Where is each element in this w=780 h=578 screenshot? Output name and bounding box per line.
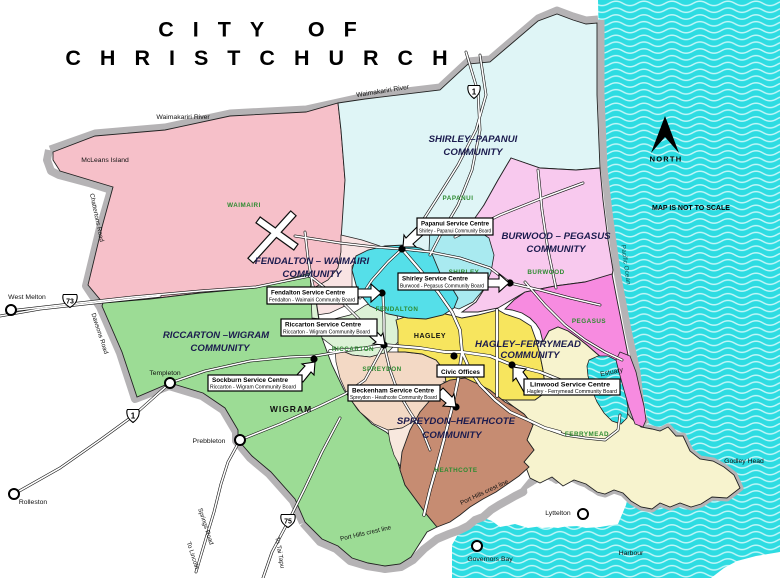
svg-text:Waimakariri River: Waimakariri River <box>156 114 210 121</box>
svg-text:Hagley - Ferrymead Community B: Hagley - Ferrymead Community Board <box>527 389 617 395</box>
svg-text:FERRYMEAD: FERRYMEAD <box>565 431 609 438</box>
svg-text:BURWOOD: BURWOOD <box>527 269 564 276</box>
svg-text:COMMUNITY: COMMUNITY <box>422 430 483 441</box>
svg-text:Riccarton - Wigram Community B: Riccarton - Wigram Community Board <box>210 385 296 391</box>
svg-text:NORTH: NORTH <box>650 155 683 164</box>
svg-text:HEATHCOTE: HEATHCOTE <box>434 467 477 474</box>
svg-text:Prebbleton: Prebbleton <box>193 438 226 445</box>
svg-text:Harbour: Harbour <box>619 550 644 557</box>
svg-text:RICCARTON: RICCARTON <box>332 346 374 353</box>
svg-text:SPREYDON–HEATHCOTE: SPREYDON–HEATHCOTE <box>397 416 516 427</box>
svg-text:Shirley - Papanui Community Bo: Shirley - Papanui Community Board <box>419 229 491 235</box>
svg-text:Beckenham Service Centre: Beckenham Service Centre <box>352 388 434 395</box>
svg-text:Rolleston: Rolleston <box>19 499 48 506</box>
svg-text:PEGASUS: PEGASUS <box>572 318 606 325</box>
svg-text:SHIRLEY–PAPANUI: SHIRLEY–PAPANUI <box>429 134 518 145</box>
svg-text:COMMUNITY: COMMUNITY <box>526 244 587 255</box>
svg-text:Riccarton - Wigram Community B: Riccarton - Wigram Community Board <box>283 330 370 336</box>
svg-text:Papanui Service Centre: Papanui Service Centre <box>421 221 489 228</box>
svg-text:HAGLEY–FERRYMEAD: HAGLEY–FERRYMEAD <box>475 339 581 350</box>
svg-text:Linwood Service Centre: Linwood Service Centre <box>530 382 610 389</box>
svg-text:Templeton: Templeton <box>149 370 181 377</box>
svg-text:Godley Head: Godley Head <box>724 458 764 465</box>
svg-text:Burwood - Pegasus Community Bo: Burwood - Pegasus Community Board <box>400 284 484 290</box>
svg-text:FENDALTON: FENDALTON <box>376 306 419 313</box>
svg-text:CHRISTCHURCH: CHRISTCHURCH <box>65 46 466 70</box>
svg-text:Riccarton Service Centre: Riccarton Service Centre <box>285 322 361 329</box>
svg-text:73: 73 <box>66 299 74 306</box>
svg-text:Shirley Service Centre: Shirley Service Centre <box>402 276 468 283</box>
svg-text:BURWOOD – PEGASUS: BURWOOD – PEGASUS <box>501 231 611 242</box>
svg-text:HAGLEY: HAGLEY <box>414 333 446 340</box>
svg-text:Fendalton - Waimairi Community: Fendalton - Waimairi Community Board <box>269 298 355 304</box>
svg-text:COMMUNITY: COMMUNITY <box>500 350 561 361</box>
svg-text:75: 75 <box>284 519 292 526</box>
svg-text:West Melton: West Melton <box>8 294 46 301</box>
svg-text:SPREYDON: SPREYDON <box>362 366 401 373</box>
svg-text:1: 1 <box>472 88 477 97</box>
svg-text:PAPANUI: PAPANUI <box>443 195 474 202</box>
svg-text:Civic Offices: Civic Offices <box>441 369 480 376</box>
svg-text:1: 1 <box>131 412 136 421</box>
svg-text:WIGRAM: WIGRAM <box>270 404 312 414</box>
svg-text:Sockburn Service Centre: Sockburn Service Centre <box>212 377 288 384</box>
svg-text:Spreydon - Heathcote Community: Spreydon - Heathcote Community Board <box>350 395 437 401</box>
svg-text:WAIMAIRI: WAIMAIRI <box>227 202 261 209</box>
svg-text:RICCARTON –WIGRAM: RICCARTON –WIGRAM <box>163 330 270 341</box>
svg-text:MAP IS NOT TO SCALE: MAP IS NOT TO SCALE <box>652 205 730 212</box>
svg-text:COMMUNITY: COMMUNITY <box>443 147 504 158</box>
svg-text:McLeans Island: McLeans Island <box>81 157 129 164</box>
svg-text:FENDALTON – WAIMAIRI: FENDALTON – WAIMAIRI <box>255 256 370 267</box>
svg-text:Governors Bay: Governors Bay <box>467 556 513 563</box>
svg-text:COMMUNITY: COMMUNITY <box>190 343 251 354</box>
svg-text:CITY OF: CITY OF <box>158 18 375 42</box>
svg-text:COMMUNITY: COMMUNITY <box>282 269 343 280</box>
svg-text:Lyttelton: Lyttelton <box>545 510 571 517</box>
svg-text:Fendalton Service Centre: Fendalton Service Centre <box>271 290 345 297</box>
